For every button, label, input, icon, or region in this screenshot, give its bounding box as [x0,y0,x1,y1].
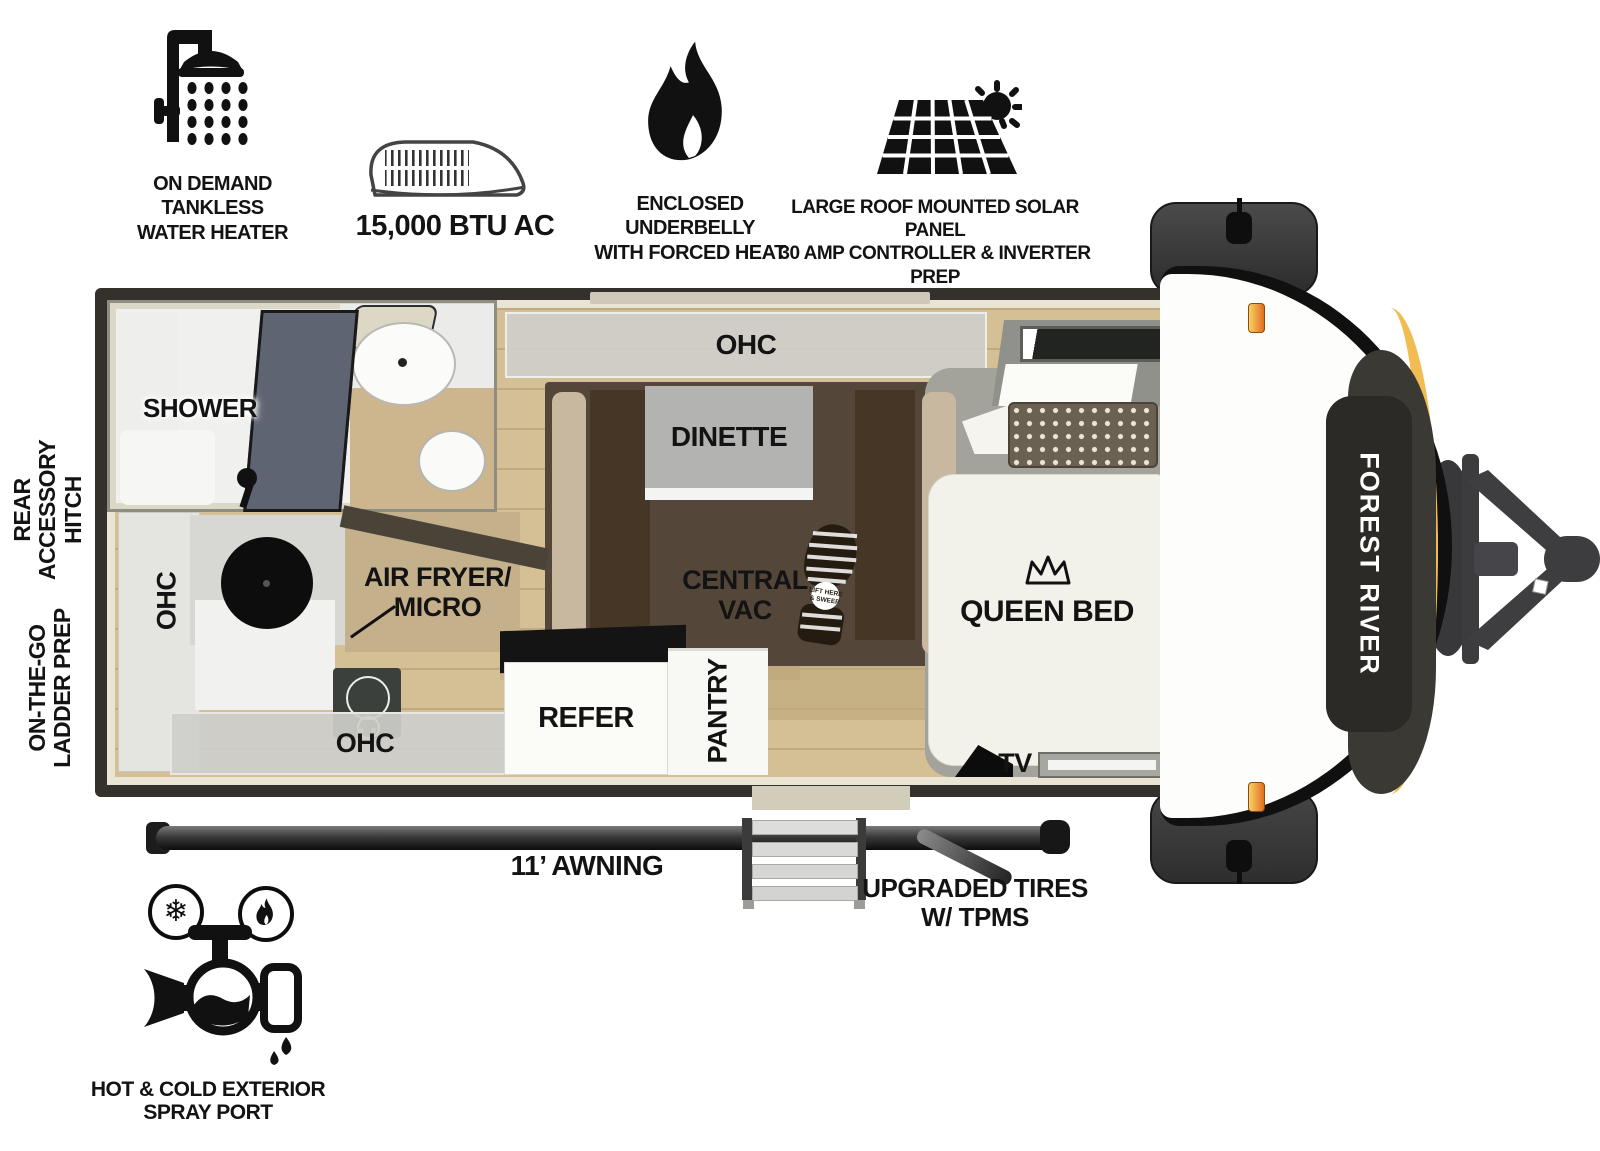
brand-text: FOREST RIVER [1354,452,1385,676]
kitchen-ohc-bottom: OHC [170,712,560,775]
ac-caption: 15,000 BTU AC [335,210,575,244]
ladder-prep-label: ON-THE-GO LADDER PREP [17,608,83,768]
dinette-table: DINETTE [645,386,813,500]
rooftop-ac-icon [363,133,535,207]
shower-head-icon [150,22,272,154]
bed-foot-window [1038,752,1168,778]
fender-latch-top [1226,212,1252,244]
shower-label: SHOWER [120,392,280,424]
marker-light-bottom [1248,782,1265,812]
flame-icon [642,36,740,186]
bed-roof-panel [998,364,1137,406]
awning-label: 11’ AWNING [462,850,712,882]
underbelly-caption: ENCLOSED UNDERBELLY WITH FORCED HEAT [575,192,805,265]
bed-pillow [1008,402,1158,468]
airfryer-label: AIR FRYER/ MICRO [340,563,535,627]
fender-latch-stem-top [1237,198,1242,214]
crown-icon [1022,554,1074,588]
sink-drain [398,358,407,367]
dinette-cushion-left [552,392,586,654]
toilet [418,430,486,492]
dinette-seat-left [590,390,650,640]
refer: REFER [504,662,668,775]
entry-steps [742,818,866,910]
bathroom-bench [120,430,215,505]
queen-bed-label: QUEEN BED [928,594,1166,628]
dinette-ohc: OHC [505,312,987,378]
pantry-label-box: PANTRY [653,646,783,776]
awning-end-knob [1040,820,1070,854]
bed-skylight [1020,326,1165,362]
fender-latch-stem-bottom [1237,870,1242,884]
water-heater-caption: ON DEMAND TANKLESS WATER HEATER [135,172,290,245]
solar-caption: LARGE ROOF MOUNTED SOLAR PANEL 30 AMP CO… [775,196,1095,289]
tires-label: UPGRADED TIRES W/ TPMS [850,874,1100,931]
kitchen-ohc-left-label: OHC [132,566,202,636]
tv-label: TV [992,750,1038,778]
fender-latch-bottom [1226,840,1252,872]
floorplan-page: ON DEMAND TANKLESS WATER HEATER 15,000 B… [0,0,1600,1151]
brand-banner: FOREST RIVER [1326,396,1412,732]
spray-port-caption: HOT & COLD EXTERIOR SPRAY PORT [63,1078,353,1124]
kitchen-sink-drain [263,580,270,587]
solar-panel-sun-icon [870,80,1022,192]
rear-accessory-hitch-label: REAR ACCESSORY HITCH [8,430,88,590]
top-wall-window [590,292,930,304]
hot-cold-spray-port-icon [138,925,313,1065]
entry-door-threshold [752,786,910,810]
marker-light-top [1248,303,1265,333]
dinette-seat-right [855,390,915,640]
